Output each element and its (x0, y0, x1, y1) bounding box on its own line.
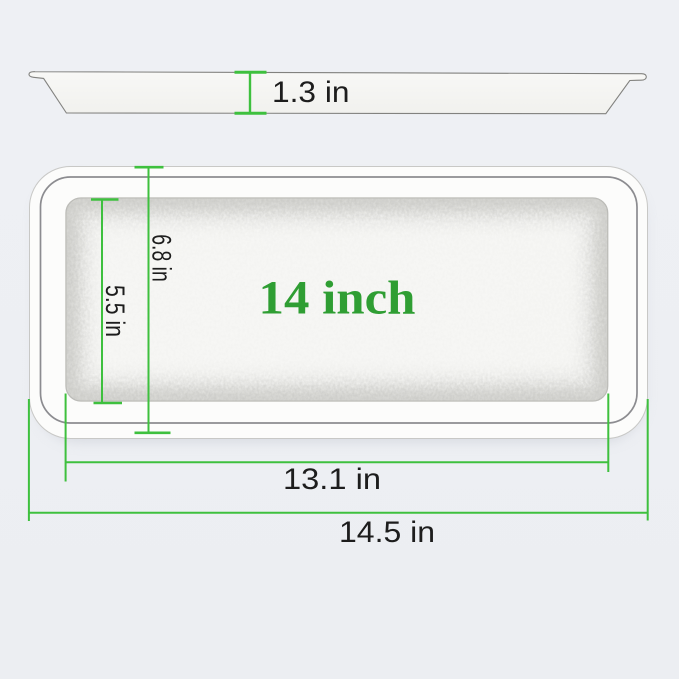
svg-text:14.5 in: 14.5 in (339, 516, 435, 549)
svg-text:14 inch: 14 inch (259, 272, 416, 325)
svg-text:6.8 in: 6.8 in (147, 234, 177, 282)
svg-text:13.1 in: 13.1 in (283, 463, 381, 496)
svg-text:1.3 in: 1.3 in (272, 76, 350, 109)
svg-text:5.5 in: 5.5 in (100, 285, 130, 337)
